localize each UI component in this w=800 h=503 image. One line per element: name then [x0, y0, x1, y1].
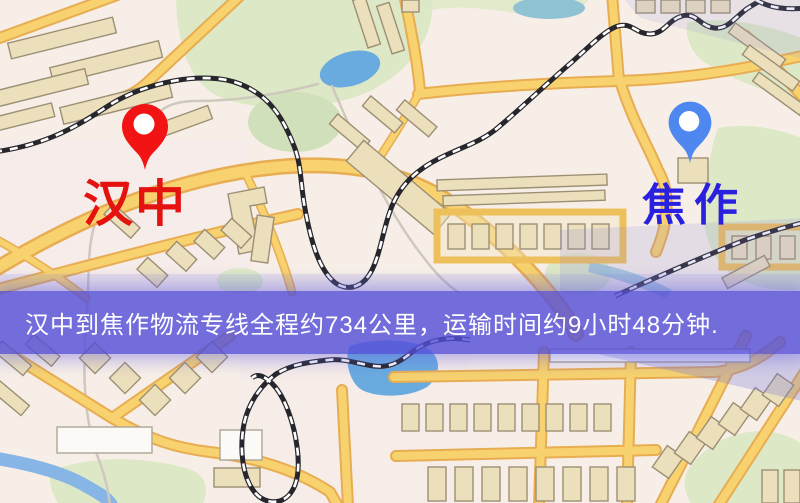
route-info-text: 汉中到焦作物流专线全程约734公里，运输时间约9小时48分钟. — [0, 305, 719, 340]
origin-label: 汉中 — [83, 179, 187, 229]
route-info-banner: 汉中到焦作物流专线全程约734公里，运输时间约9小时48分钟. — [0, 291, 800, 354]
destination-label: 焦作 — [642, 184, 746, 228]
map-canvas[interactable] — [0, 0, 800, 503]
map-view[interactable]: 汉中 焦作 汉中到焦作物流专线全程约734公里，运输时间约9小时48分钟. — [0, 0, 800, 503]
